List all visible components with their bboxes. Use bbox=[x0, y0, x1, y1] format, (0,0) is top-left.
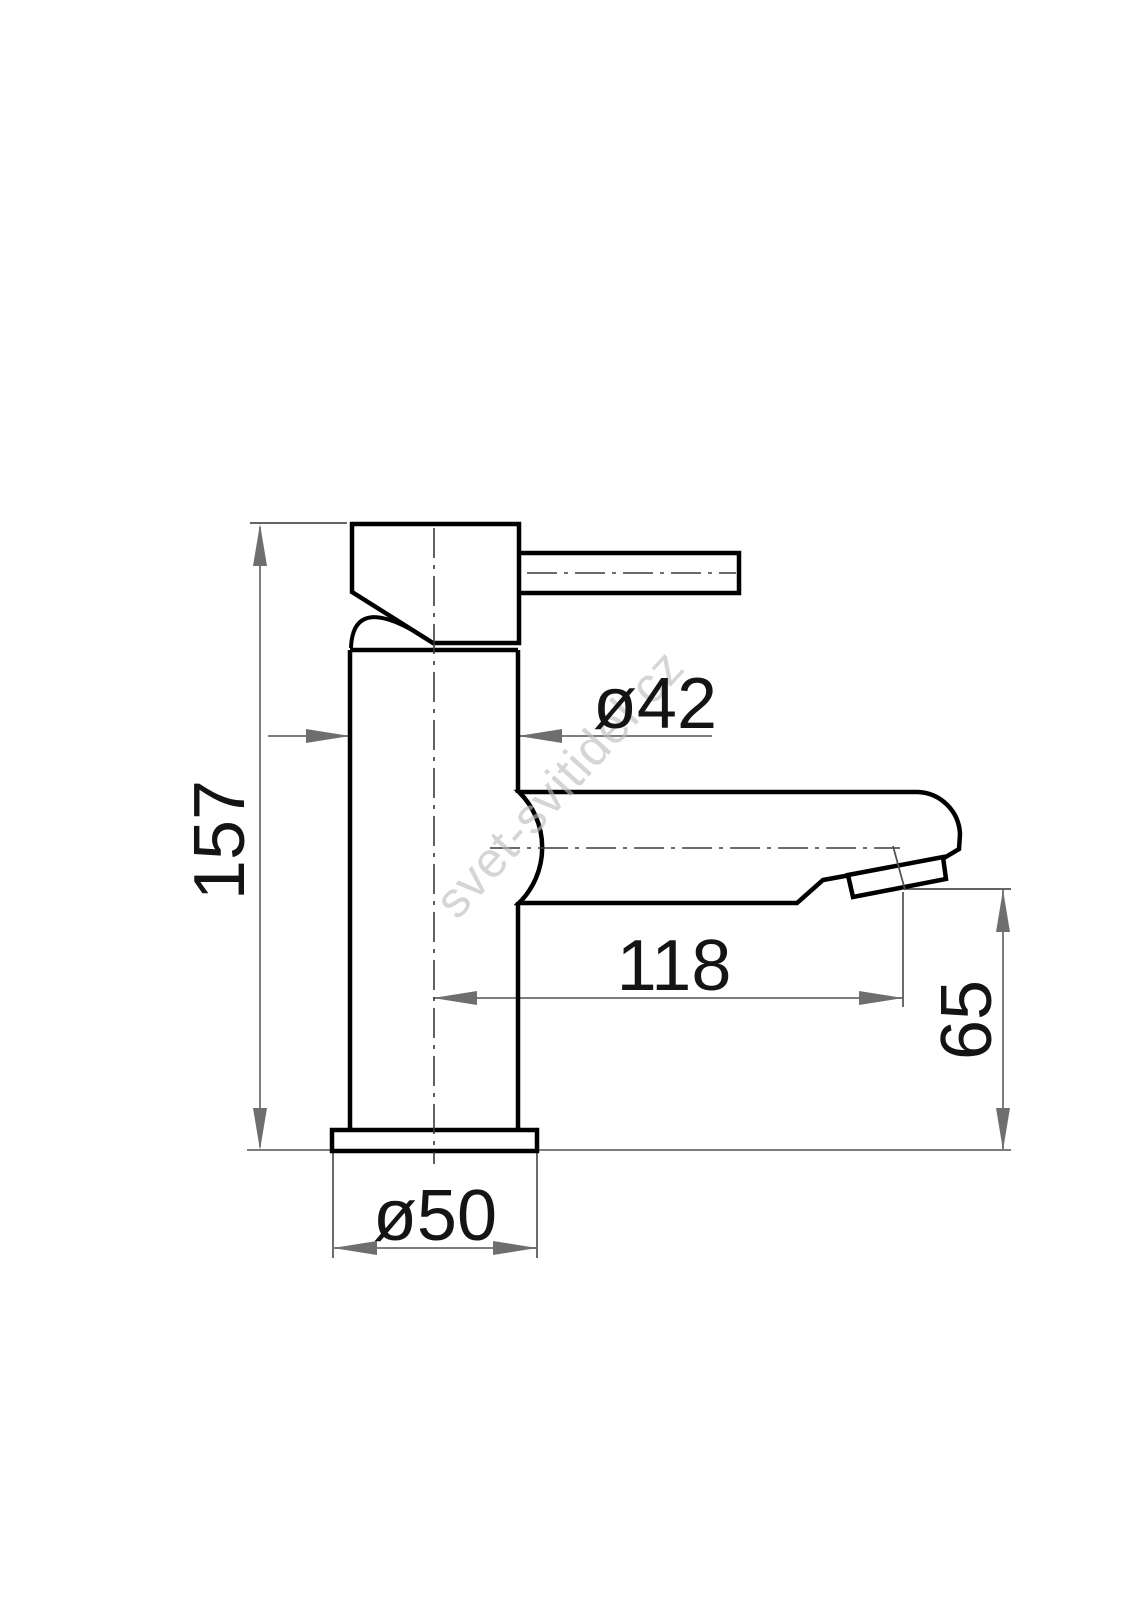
spout-height-arrow-down-icon bbox=[996, 1108, 1010, 1150]
technical-drawing-canvas: svet-svitidel.cz 157 ø42 118 65 ø50 bbox=[0, 0, 1131, 1600]
body-diameter-arrow-left-icon bbox=[518, 729, 562, 743]
reach-arrow-right-icon bbox=[859, 991, 903, 1005]
faucet-head bbox=[352, 524, 519, 643]
height-arrow-up-icon bbox=[253, 524, 267, 566]
base-diameter-arrow-right-icon bbox=[493, 1241, 537, 1255]
spout-height-label: 65 bbox=[927, 980, 1007, 1060]
faucet-outline bbox=[332, 524, 960, 1151]
reach-arrow-left-icon bbox=[433, 991, 477, 1005]
spout-reach-label: 118 bbox=[617, 926, 732, 1006]
height-arrow-down-icon bbox=[253, 1108, 267, 1150]
body-diameter-arrow-right-icon bbox=[306, 729, 350, 743]
base-diameter-arrow-left-icon bbox=[333, 1241, 377, 1255]
base-diameter-label: ø50 bbox=[373, 1176, 497, 1256]
total-height-label: 157 bbox=[180, 780, 260, 900]
spout-height-arrow-up-icon bbox=[996, 890, 1010, 932]
body-diameter-label: ø42 bbox=[593, 664, 717, 744]
faucet-technical-drawing-page: svet-svitidel.cz 157 ø42 118 65 ø50 bbox=[0, 0, 1131, 1600]
